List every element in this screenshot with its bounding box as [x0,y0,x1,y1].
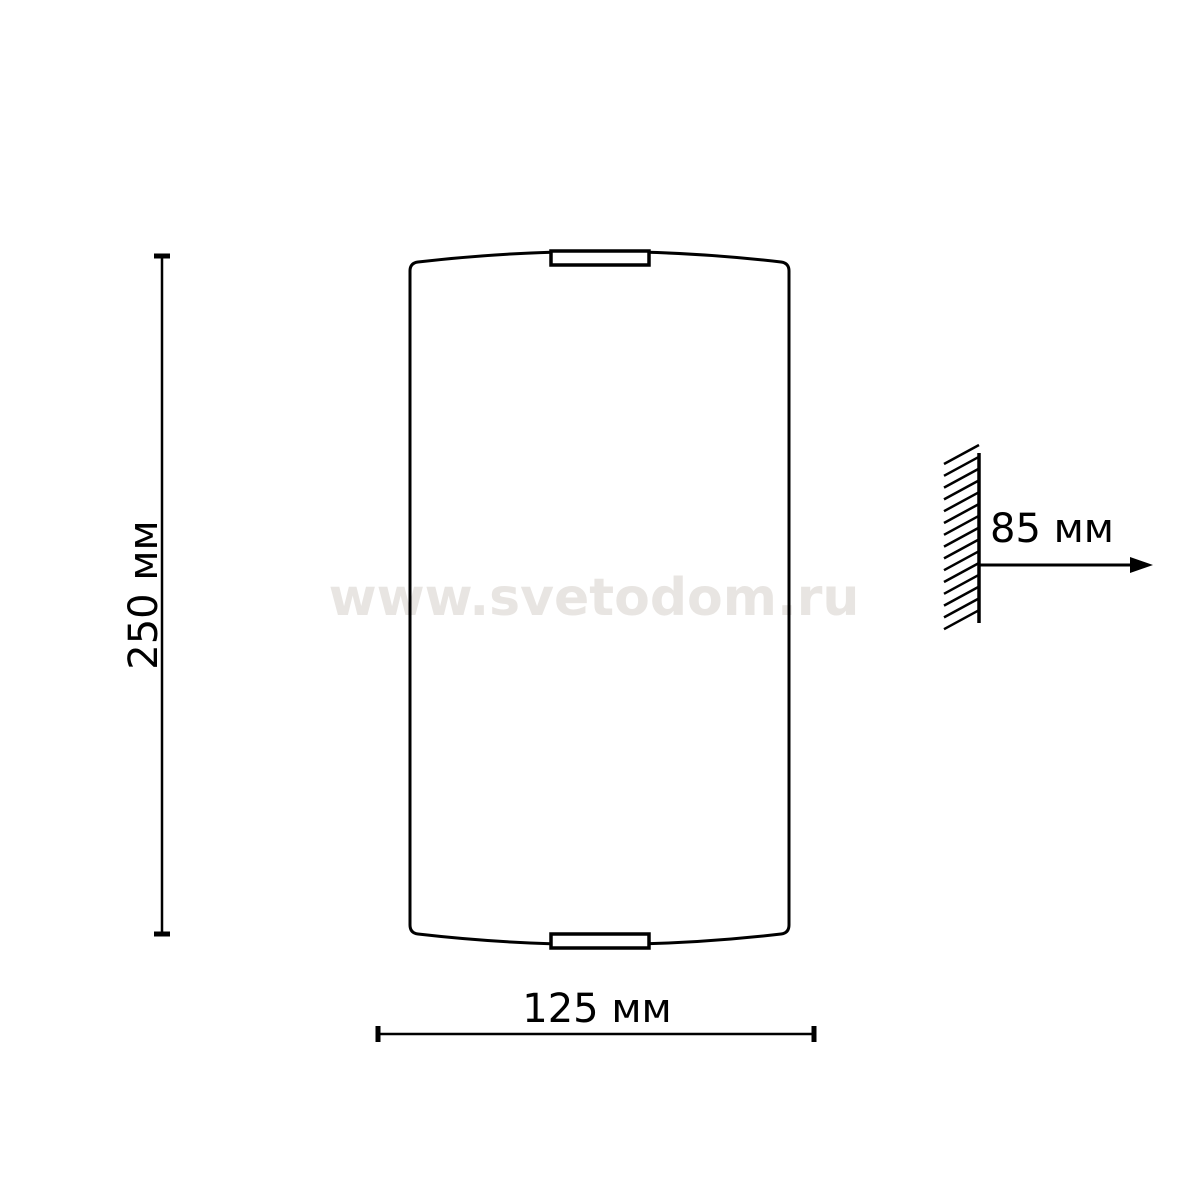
width-dimension: 125 мм [378,986,814,1042]
watermark-layer: www.svetodom.ru [329,568,860,628]
wall-mount-indicator: 85 мм [944,445,1153,629]
height-dimension-label: 250 мм [121,520,167,669]
top-mount-bracket [551,251,649,265]
bottom-mount-bracket [551,934,649,948]
wall-distance-arrow-head [1130,557,1153,573]
width-dimension-label: 125 мм [522,986,671,1032]
height-dimension: 250 мм [121,256,170,934]
dimension-drawing-page: www.svetodom.ru 250 мм 125 мм [0,0,1200,1200]
wall-distance-label: 85 мм [990,506,1114,552]
wall-hatching [944,445,979,629]
watermark-text: www.svetodom.ru [329,568,860,628]
lamp-dimension-diagram: www.svetodom.ru 250 мм 125 мм [0,0,1200,1200]
